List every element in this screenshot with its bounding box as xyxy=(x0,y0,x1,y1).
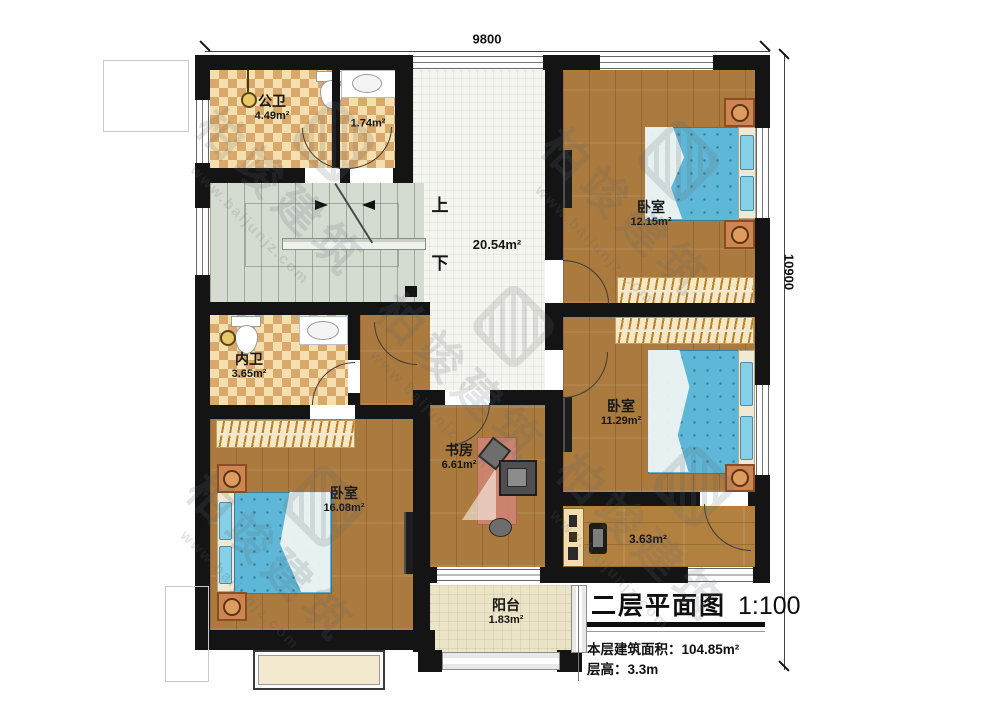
floor-hallway xyxy=(413,70,545,390)
wardrobe xyxy=(617,277,754,305)
bed xyxy=(217,492,330,592)
nightstand xyxy=(724,98,755,127)
title-underline xyxy=(587,622,765,627)
wall-segment xyxy=(545,398,563,567)
stair-handrail xyxy=(282,238,426,250)
wall-segment xyxy=(195,55,413,70)
room-label-washroom: 1.74m² xyxy=(351,117,386,130)
bed xyxy=(648,350,755,472)
window xyxy=(196,208,209,275)
wardrobe xyxy=(615,317,754,344)
window xyxy=(413,56,543,69)
wall-segment xyxy=(545,317,563,350)
stairs-up-label: 上 xyxy=(432,196,449,216)
staircase xyxy=(210,183,424,302)
wall-segment xyxy=(195,55,210,100)
room-label-ensuite-bath: 内卫3.65m² xyxy=(232,351,267,381)
stair-break-arrow-left xyxy=(315,200,328,210)
wall-segment xyxy=(543,55,600,70)
dimension-width-label: 9800 xyxy=(473,32,502,47)
wall-segment xyxy=(195,630,435,650)
title-underline-thin xyxy=(587,631,765,632)
room-label-corridor: 3.63m² xyxy=(629,532,667,546)
room-label-bedroom-bottom-left: 卧室16.08m² xyxy=(324,485,365,515)
room-label-bedroom-mid-right: 卧室11.29m² xyxy=(601,398,641,428)
plan-title: 二层平面图 xyxy=(591,592,726,620)
stair-break-arrow-right xyxy=(362,200,375,210)
wall-segment xyxy=(395,70,413,168)
floor-height-line: 层高：3.3m xyxy=(587,658,658,678)
extension-box xyxy=(103,60,189,132)
dimension-tick xyxy=(199,40,210,51)
wall-segment xyxy=(210,168,305,183)
room-label-public-bath: 公卫4.49m² xyxy=(255,93,290,123)
room-label-balcony: 阳台1.83m² xyxy=(489,597,524,627)
plan-title-row: 二层平面图1:100 xyxy=(591,586,801,622)
tv-cabinet xyxy=(404,512,413,574)
desk-chair xyxy=(489,518,512,537)
wall-segment xyxy=(755,55,770,128)
stairs-down-label: 下 xyxy=(432,254,449,274)
dimension-line-right xyxy=(784,55,785,670)
window xyxy=(688,568,753,582)
shower-head-icon xyxy=(220,330,236,346)
wall-segment xyxy=(340,168,350,183)
wall-segment xyxy=(413,390,430,567)
balcony-sliding-door xyxy=(437,569,540,581)
dimension-tick xyxy=(759,40,770,51)
nightstand xyxy=(217,464,247,493)
extension-box xyxy=(165,586,209,682)
dimension-height-label: 10900 xyxy=(782,254,797,290)
room-label-study: 书房6.61m² xyxy=(442,442,477,472)
floor-plan-canvas: 公卫4.49m² 1.74m² 上 下 20.54m² 卧室12.15m² 内卫… xyxy=(0,0,1000,706)
wall-segment xyxy=(195,405,310,419)
title-block: 二层平面图1:100 本层建筑面积：104.85m² 层高：3.3m xyxy=(578,586,849,681)
wall-segment xyxy=(430,390,445,405)
shower-head-stem xyxy=(247,70,249,94)
wall-segment xyxy=(490,390,563,405)
wall-segment xyxy=(753,567,770,583)
desk xyxy=(499,460,537,496)
bay-window xyxy=(253,650,385,690)
hall-seat xyxy=(589,523,607,554)
tv-cabinet xyxy=(563,397,572,452)
wall-segment xyxy=(348,315,360,360)
wall-segment xyxy=(195,302,430,315)
room-label-bedroom-top-right: 卧室12.15m² xyxy=(631,199,672,229)
wall-segment xyxy=(545,70,563,260)
wall-segment xyxy=(755,218,770,385)
window xyxy=(756,128,769,218)
wall-segment xyxy=(413,567,437,583)
wardrobe xyxy=(216,420,355,448)
nightstand xyxy=(724,220,755,249)
wall-segment xyxy=(195,163,210,208)
sink-basin xyxy=(352,74,382,93)
dimension-line-top xyxy=(205,51,770,52)
stair-landing-outline xyxy=(245,203,399,267)
room-label-hallway: 20.54m² xyxy=(473,237,521,253)
display-cabinet xyxy=(563,508,584,567)
floor-area-line: 本层建筑面积：104.85m² xyxy=(587,638,739,658)
wall-segment xyxy=(545,303,755,317)
balcony-railing xyxy=(442,652,560,670)
window xyxy=(600,56,713,69)
nightstand xyxy=(725,464,755,492)
window xyxy=(756,385,769,475)
wall-segment xyxy=(413,583,430,652)
tv-cabinet xyxy=(563,150,572,208)
sink-basin xyxy=(307,321,339,340)
wall-segment xyxy=(563,492,700,506)
balcony-post xyxy=(418,650,442,672)
window xyxy=(196,100,209,163)
nightstand xyxy=(217,592,247,621)
stair-corner-mark xyxy=(405,286,417,297)
wall-segment xyxy=(393,168,413,183)
wall-segment xyxy=(540,567,688,583)
plan-scale: 1:100 xyxy=(738,592,801,620)
